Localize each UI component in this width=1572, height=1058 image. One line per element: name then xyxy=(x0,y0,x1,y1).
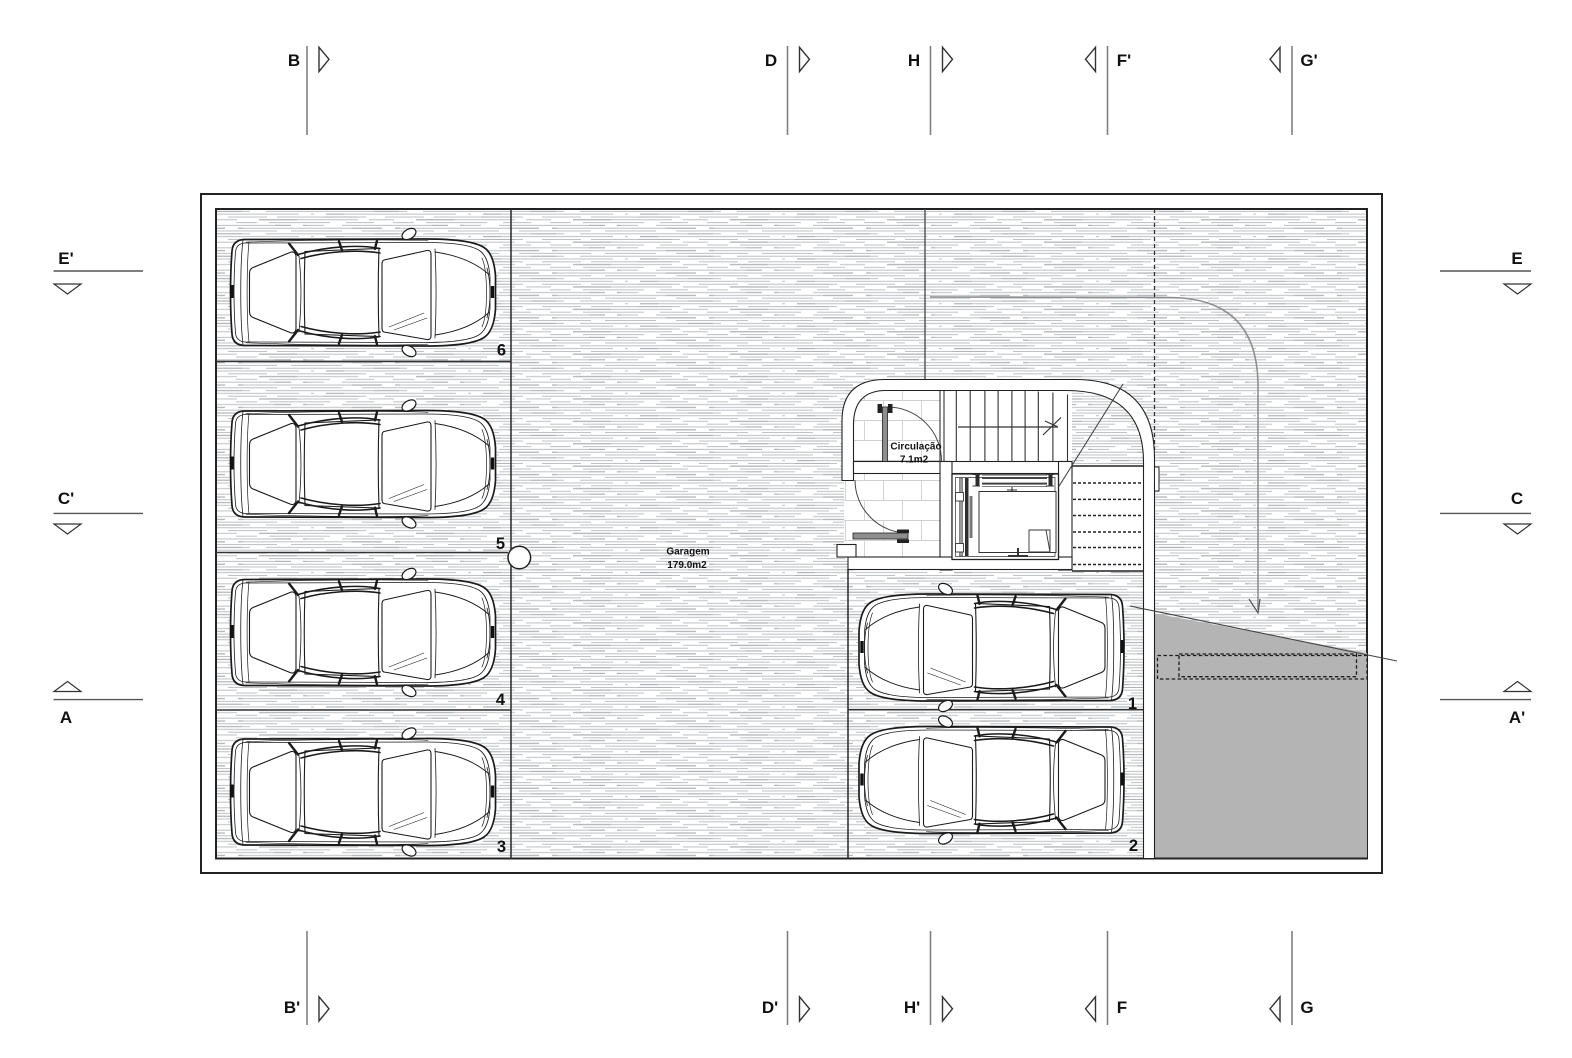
svg-text:G: G xyxy=(1300,998,1313,1017)
svg-text:E': E' xyxy=(58,249,73,268)
svg-text:5: 5 xyxy=(496,535,505,553)
svg-text:D: D xyxy=(765,51,777,70)
svg-text:A': A' xyxy=(1509,708,1525,727)
svg-text:A: A xyxy=(60,708,72,727)
svg-text:7.1m2: 7.1m2 xyxy=(900,455,929,466)
svg-text:179.0m2: 179.0m2 xyxy=(667,560,707,571)
svg-text:C: C xyxy=(1511,489,1523,508)
svg-text:C': C' xyxy=(58,489,74,508)
svg-text:H: H xyxy=(908,51,920,70)
svg-text:H': H' xyxy=(904,998,920,1017)
svg-text:6: 6 xyxy=(497,342,506,360)
svg-text:G': G' xyxy=(1300,51,1317,70)
svg-text:F': F' xyxy=(1117,51,1131,70)
svg-text:D': D' xyxy=(762,998,778,1017)
svg-text:B': B' xyxy=(284,998,300,1017)
svg-text:Circulação: Circulação xyxy=(890,442,941,453)
svg-text:3: 3 xyxy=(497,838,506,856)
svg-text:E: E xyxy=(1511,249,1522,268)
svg-text:F: F xyxy=(1117,998,1127,1017)
svg-text:4: 4 xyxy=(496,691,506,709)
svg-text:Garagem: Garagem xyxy=(666,547,709,558)
svg-text:B: B xyxy=(288,51,300,70)
svg-text:1: 1 xyxy=(1128,695,1137,713)
svg-text:2: 2 xyxy=(1129,837,1138,855)
